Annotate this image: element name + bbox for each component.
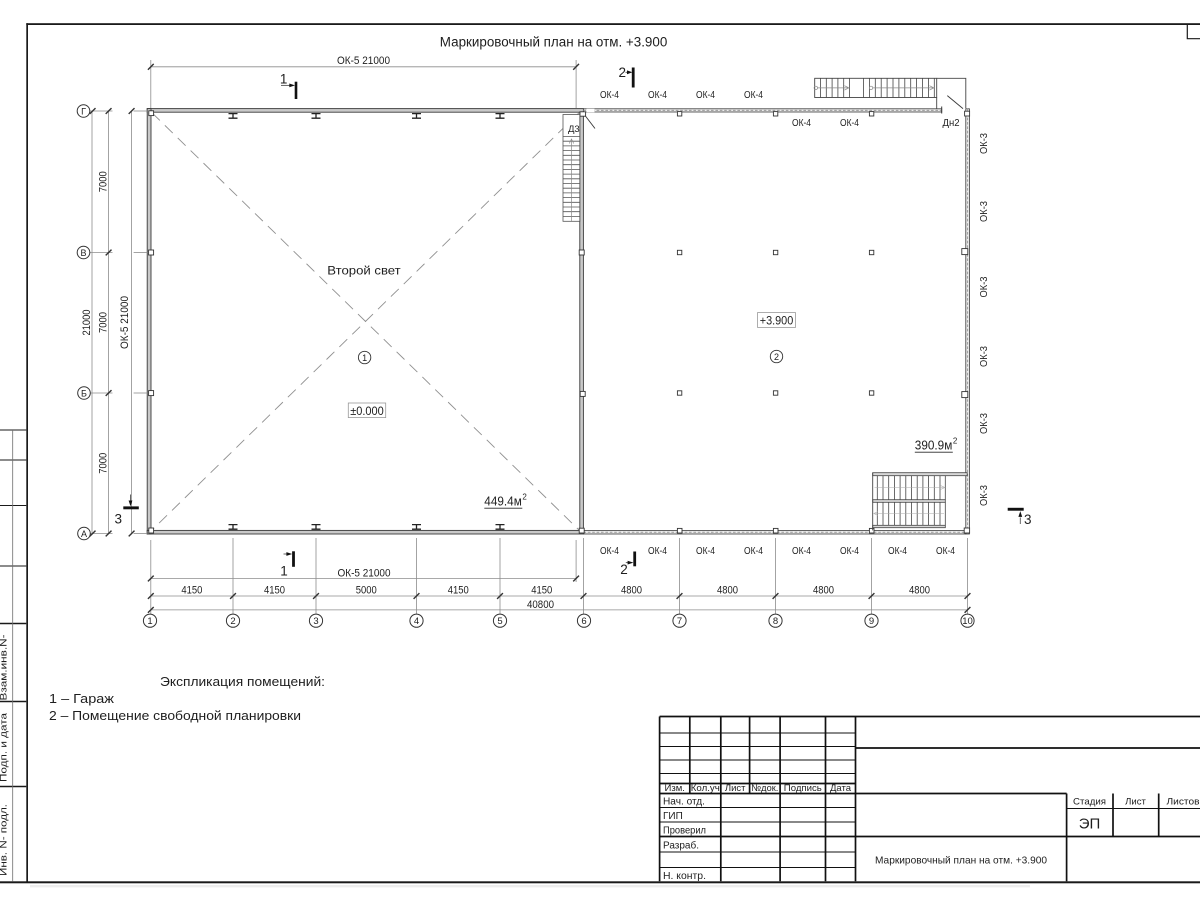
svg-text:Стадия: Стадия [1073,797,1106,808]
svg-text:ЭП: ЭП [1079,816,1101,833]
svg-text:ОК-4: ОК-4 [648,546,667,557]
svg-text:ОК-5 21000: ОК-5 21000 [337,55,390,67]
svg-text:ОК-4: ОК-4 [840,118,859,129]
svg-text:2: 2 [619,65,627,80]
svg-text:ОК-4: ОК-4 [888,546,907,557]
svg-text:2: 2 [953,437,958,446]
svg-text:3: 3 [313,616,318,627]
svg-text:ОК-3: ОК-3 [979,485,990,506]
svg-text:4150: 4150 [264,585,285,597]
svg-text:Лист: Лист [725,783,746,794]
svg-text:ОК-4: ОК-4 [648,90,667,101]
svg-text:4: 4 [414,616,419,627]
svg-text:Листов: Листов [1167,797,1200,808]
svg-text:ОК-4: ОК-4 [792,546,811,557]
svg-text:4150: 4150 [448,585,469,597]
svg-text:1: 1 [147,616,152,627]
svg-text:Маркировочный план на отм. +3.: Маркировочный план на отм. +3.900 [875,855,1047,867]
svg-text:ГИП: ГИП [663,811,683,822]
svg-text:7000: 7000 [98,453,110,474]
svg-text:Г: Г [81,106,86,116]
svg-text:1: 1 [280,72,288,87]
svg-text:2: 2 [620,562,628,577]
svg-text:Б: Б [81,388,87,398]
svg-text:1 – Гараж: 1 – Гараж [49,691,114,706]
svg-text:8: 8 [773,616,778,627]
svg-text:+3.900: +3.900 [760,316,794,328]
svg-text:449.4м: 449.4м [484,495,522,509]
svg-text:Дн2: Дн2 [943,118,960,129]
svg-text:4800: 4800 [717,585,738,597]
svg-text:21000: 21000 [81,310,93,336]
svg-text:7000: 7000 [98,312,110,333]
svg-text:40800: 40800 [527,599,554,611]
svg-text:Изм.: Изм. [665,783,685,794]
svg-text:ОК-4: ОК-4 [600,90,619,101]
svg-text:ОК-4: ОК-4 [936,546,955,557]
svg-text:Маркировочный план на отм. +3.: Маркировочный план на отм. +3.900 [440,35,668,50]
svg-text:2: 2 [774,352,779,362]
svg-text:ОК-4: ОК-4 [600,546,619,557]
svg-text:2 – Помещение свободной планир: 2 – Помещение свободной планировки [49,708,301,723]
svg-text:Разраб.: Разраб. [663,840,699,852]
svg-text:1: 1 [362,353,367,363]
svg-text:9: 9 [869,616,874,627]
svg-text:4150: 4150 [181,585,202,597]
svg-text:4150: 4150 [531,585,552,597]
svg-text:ОК-3: ОК-3 [979,201,990,222]
svg-text:В: В [80,248,86,258]
svg-text:1: 1 [280,564,288,579]
svg-text:Экспликация помещений:: Экспликация помещений: [160,674,325,689]
svg-text:ОК-4: ОК-4 [792,118,811,129]
svg-text:ОК-4: ОК-4 [696,546,715,557]
svg-text:Н. контр.: Н. контр. [663,871,706,882]
svg-text:4800: 4800 [813,585,834,597]
svg-text:6: 6 [581,616,586,627]
svg-text:ОК-4: ОК-4 [840,546,859,557]
svg-text:Нач. отд.: Нач. отд. [663,797,705,808]
svg-text:2: 2 [230,616,235,627]
svg-text:ОК-4: ОК-4 [696,90,715,101]
svg-text:7000: 7000 [98,171,110,192]
svg-text:7: 7 [677,616,682,627]
svg-text:390.9м: 390.9м [915,439,953,453]
svg-text:ОК-3: ОК-3 [979,133,990,154]
svg-text:4800: 4800 [621,585,642,597]
svg-text:5000: 5000 [356,585,377,597]
svg-text:3: 3 [114,512,122,527]
svg-text:ОК-3: ОК-3 [979,346,990,367]
svg-text:ОК-4: ОК-4 [744,90,763,101]
svg-text:ОК-3: ОК-3 [979,276,990,297]
svg-text:Взам.инв.N-: Взам.инв.N- [0,635,10,701]
svg-text:А: А [81,529,87,539]
svg-text:№док.: №док. [751,783,778,794]
svg-text:±0.000: ±0.000 [350,406,384,418]
svg-text:Подпись: Подпись [784,783,822,794]
svg-text:Проверил: Проверил [663,826,706,837]
svg-text:10: 10 [962,616,973,627]
svg-text:5: 5 [497,616,502,627]
svg-text:Второй свет: Второй свет [327,264,401,278]
svg-text:Дата: Дата [830,783,852,794]
svg-text:Инв. N- подл.: Инв. N- подл. [0,804,10,876]
svg-text:4800: 4800 [909,585,930,597]
svg-text:ОК-3: ОК-3 [979,413,990,434]
svg-text:Д3: Д3 [568,124,580,135]
svg-text:ОК-5 21000: ОК-5 21000 [119,296,131,349]
svg-text:ОК-5 21000: ОК-5 21000 [338,568,391,580]
svg-text:Лист: Лист [1125,797,1146,808]
svg-text:Подп. и дата: Подп. и дата [0,712,10,782]
svg-text:2: 2 [522,493,527,502]
svg-text:Кол.уч: Кол.уч [691,783,720,794]
svg-text:ОК-4: ОК-4 [744,546,763,557]
svg-text:3: 3 [1024,512,1032,527]
